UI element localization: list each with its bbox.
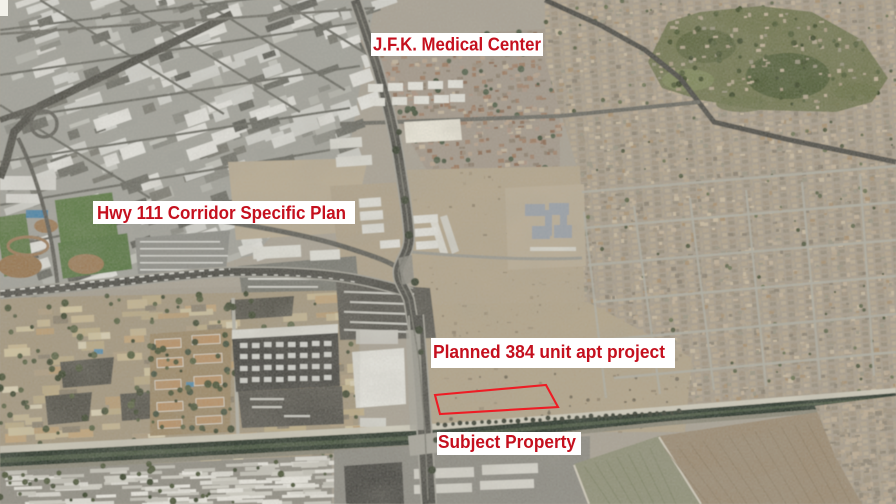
- svg-text:J.F.K. Medical Center: J.F.K. Medical Center: [373, 35, 541, 55]
- svg-text:Hwy 111 Corridor Specific Plan: Hwy 111 Corridor Specific Plan: [97, 203, 346, 223]
- svg-text:Planned 384 unit apt project: Planned 384 unit apt project: [433, 341, 665, 362]
- svg-text:Subject Property: Subject Property: [438, 432, 576, 452]
